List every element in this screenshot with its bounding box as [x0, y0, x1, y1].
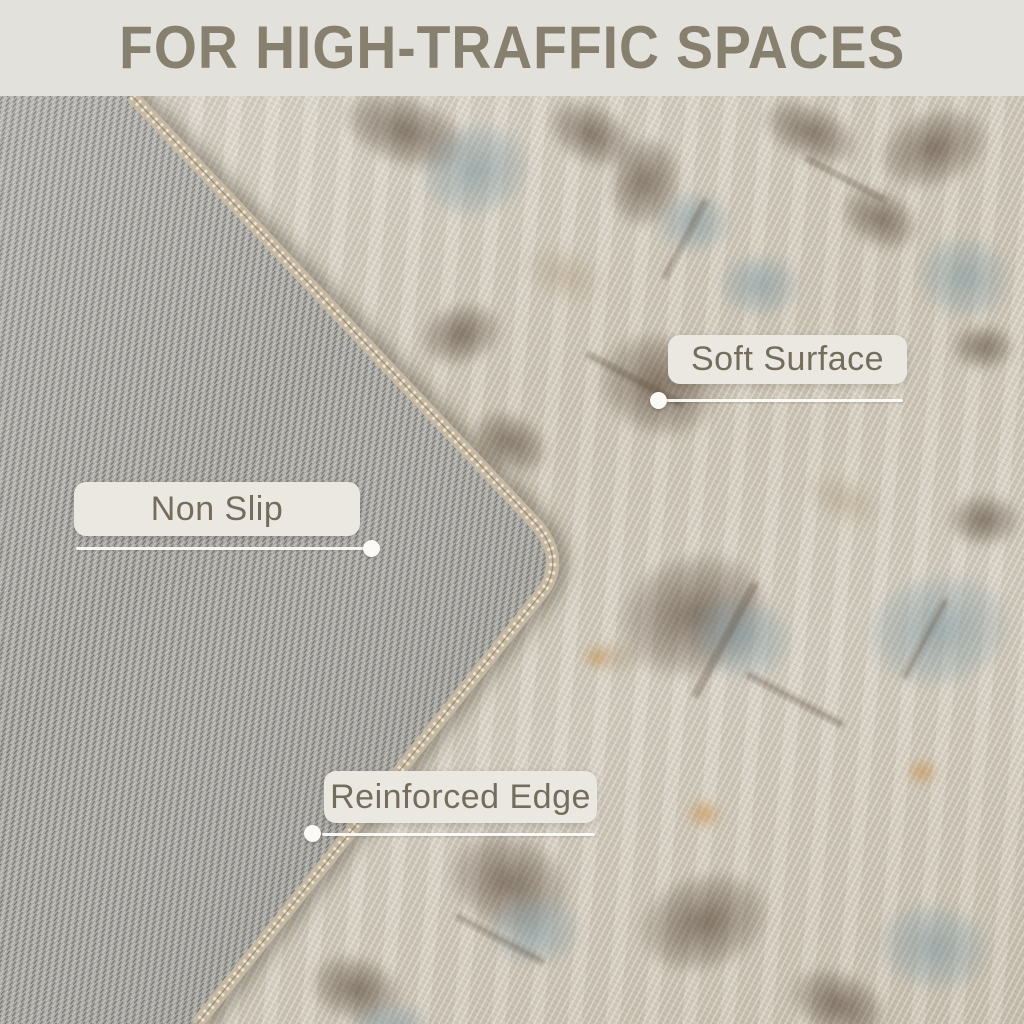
callout-non-slip-line [76, 547, 364, 550]
callout-soft-surface-label: Soft Surface [691, 340, 884, 379]
callout-soft-surface-line [662, 399, 903, 402]
callout-soft-surface-dot [650, 392, 667, 409]
callout-soft-surface-box: Soft Surface [668, 335, 907, 384]
callout-non-slip-label: Non Slip [151, 490, 284, 529]
folded-corner-graphic [0, 96, 1024, 1024]
rug-photo: Soft Surface Non Slip Reinforced Edge [0, 96, 1024, 1024]
callout-non-slip-dot [363, 540, 380, 557]
banner: FOR HIGH-TRAFFIC SPACES [0, 0, 1024, 96]
callout-reinforced-edge-box: Reinforced Edge [324, 771, 597, 823]
callout-reinforced-edge-label: Reinforced Edge [330, 778, 591, 817]
product-marketing-image: FOR HIGH-TRAFFIC SPACES [0, 0, 1024, 1024]
banner-title: FOR HIGH-TRAFFIC SPACES [119, 13, 905, 83]
callout-reinforced-edge-dot [304, 825, 321, 842]
callout-non-slip-box: Non Slip [74, 482, 360, 536]
callout-reinforced-edge-line [322, 833, 595, 836]
